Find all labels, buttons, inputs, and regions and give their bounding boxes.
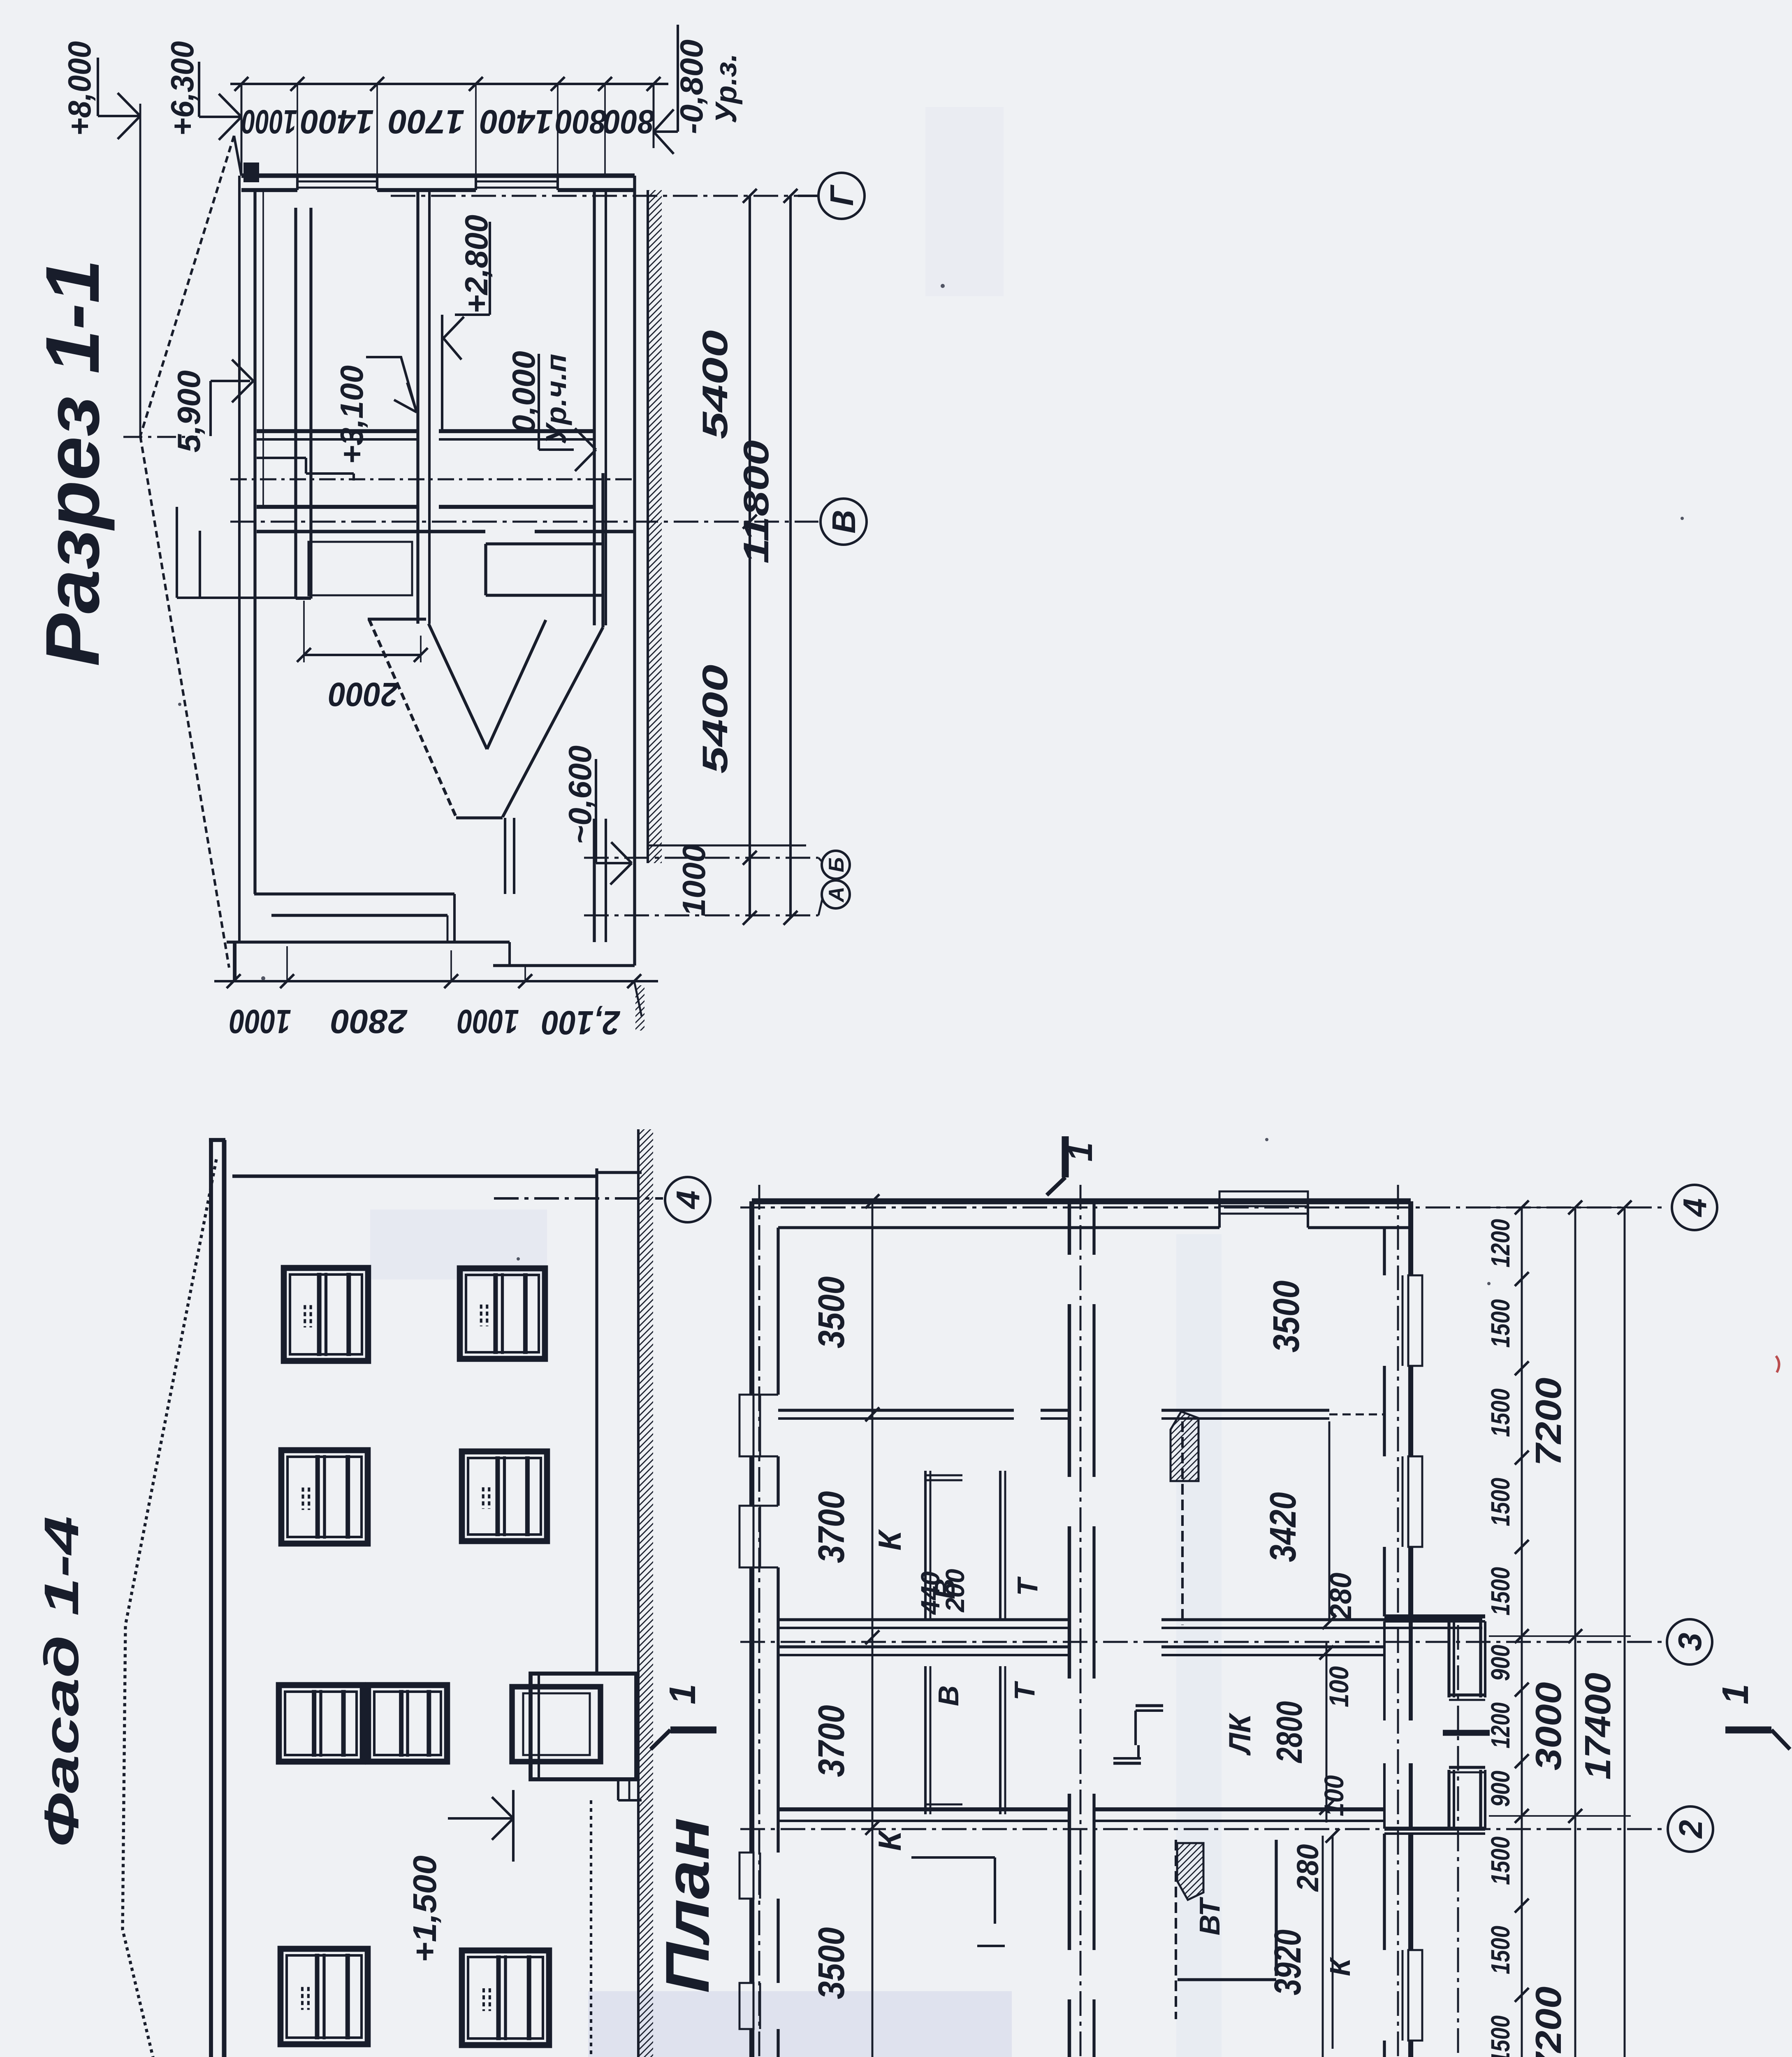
- svg-text:800: 800: [556, 103, 607, 140]
- svg-text:1500: 1500: [1486, 1926, 1515, 1974]
- svg-text:А: А: [825, 887, 848, 903]
- svg-text:Т: Т: [1008, 1681, 1041, 1700]
- svg-text:1500: 1500: [1486, 1388, 1515, 1437]
- svg-text:+6,300: +6,300: [164, 41, 200, 136]
- svg-text:200: 200: [940, 1569, 970, 1613]
- svg-text:Ур.з.: Ур.з.: [710, 53, 743, 123]
- svg-text:100: 100: [1319, 1775, 1349, 1816]
- svg-text:280: 280: [1291, 1844, 1325, 1892]
- svg-text:1500: 1500: [1486, 2015, 1515, 2057]
- svg-text:К: К: [872, 1829, 908, 1851]
- svg-text:3500: 3500: [811, 1927, 852, 1999]
- svg-text:3700: 3700: [811, 1705, 852, 1777]
- svg-text:1400: 1400: [480, 103, 553, 140]
- svg-text:2000: 2000: [329, 676, 399, 713]
- svg-text:3420: 3420: [1263, 1492, 1304, 1562]
- svg-text:3500: 3500: [811, 1277, 852, 1349]
- svg-text:1: 1: [1715, 1684, 1756, 1704]
- svg-text:План: План: [653, 1818, 722, 1993]
- svg-text:+3,100: +3,100: [334, 365, 370, 464]
- svg-text:100: 100: [1324, 1666, 1354, 1707]
- svg-text:1200: 1200: [1486, 1702, 1515, 1748]
- svg-text:1500: 1500: [1486, 1567, 1515, 1616]
- svg-text:1: 1: [1061, 1142, 1100, 1161]
- svg-text:900: 900: [1486, 1645, 1515, 1681]
- svg-text:Фасад 1-4: Фасад 1-4: [35, 1516, 89, 1847]
- svg-text:900: 900: [1486, 1771, 1515, 1807]
- svg-text:+8,000: +8,000: [61, 41, 97, 136]
- svg-text:0,000: 0,000: [505, 351, 542, 433]
- svg-text:~0,600: ~0,600: [562, 745, 598, 844]
- svg-text:1000: 1000: [230, 1003, 291, 1040]
- svg-text:1000: 1000: [457, 1003, 519, 1040]
- svg-text:1500: 1500: [1486, 1478, 1515, 1526]
- svg-text:1400: 1400: [301, 103, 374, 140]
- svg-text:1000: 1000: [676, 845, 712, 917]
- svg-text:Т: Т: [1011, 1576, 1043, 1596]
- svg-text:1200: 1200: [1486, 1219, 1515, 1268]
- svg-text:1000: 1000: [242, 103, 297, 140]
- svg-text:17400: 17400: [1577, 1673, 1618, 1780]
- svg-text:4: 4: [670, 1191, 706, 1210]
- svg-text:7200: 7200: [1528, 1986, 1569, 2057]
- svg-text:К: К: [872, 1529, 908, 1551]
- svg-text:+1,500: +1,500: [406, 1855, 443, 1962]
- svg-text:3500: 3500: [1266, 1281, 1307, 1353]
- svg-text:3700: 3700: [811, 1491, 852, 1563]
- svg-text:ЛК: ЛК: [1223, 1712, 1257, 1756]
- svg-text:5400: 5400: [695, 665, 735, 774]
- svg-text:К: К: [1324, 1957, 1356, 1976]
- svg-text:2800: 2800: [331, 1003, 408, 1040]
- svg-text:11800: 11800: [737, 440, 776, 564]
- svg-text:1500: 1500: [1486, 1836, 1515, 1885]
- svg-text:4: 4: [1676, 1198, 1713, 1218]
- svg-text:280: 280: [1324, 1573, 1358, 1621]
- svg-text:3: 3: [1671, 1633, 1708, 1651]
- svg-text:1700: 1700: [389, 103, 465, 140]
- svg-text:5400: 5400: [695, 330, 735, 439]
- svg-text:800: 800: [604, 103, 655, 140]
- svg-text:2,100: 2,100: [542, 1004, 621, 1041]
- svg-text:1500: 1500: [1486, 1299, 1515, 1348]
- svg-text:Г: Г: [823, 184, 860, 206]
- svg-text:ВТ: ВТ: [1194, 1897, 1226, 1935]
- svg-text:1: 1: [662, 1684, 703, 1704]
- svg-text:5,900: 5,900: [171, 370, 207, 453]
- svg-text:2: 2: [1672, 1820, 1709, 1839]
- svg-text:Разрез 1-1: Разрез 1-1: [30, 259, 115, 666]
- svg-text:3000: 3000: [1528, 1682, 1569, 1770]
- svg-text:Б: Б: [825, 857, 848, 873]
- svg-text:2800: 2800: [1269, 1701, 1310, 1764]
- svg-text:7200: 7200: [1528, 1377, 1569, 1466]
- svg-text:В: В: [825, 510, 862, 534]
- svg-text:3920: 3920: [1267, 1929, 1309, 1995]
- svg-text:В: В: [932, 1686, 964, 1706]
